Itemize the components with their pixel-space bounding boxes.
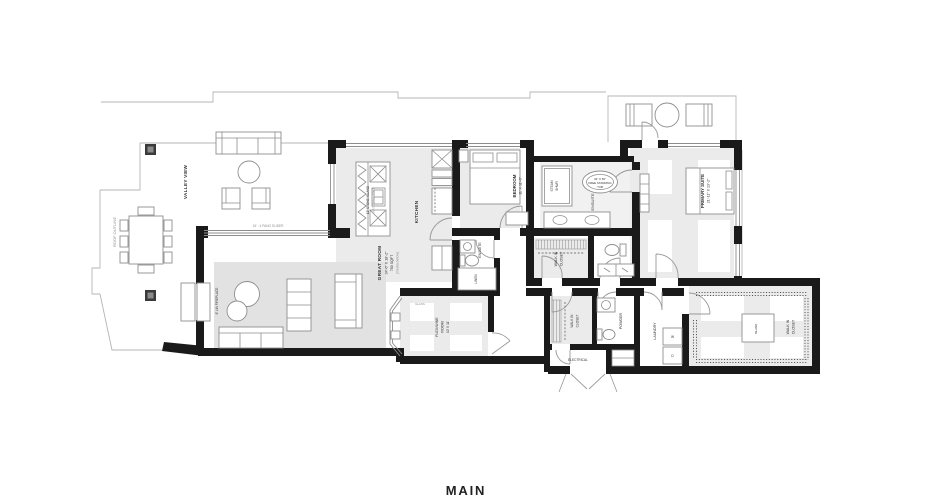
closet-shelf: [536, 240, 586, 249]
primary-ensuite-label: ENSUITE: [590, 193, 595, 211]
glass-label: GLASS: [415, 302, 425, 306]
great-room-area: 780 SQFT: [390, 254, 394, 271]
bedroom-label: BEDROOM: [512, 174, 517, 197]
bedroom-dims: 11' X 11'-6": [519, 176, 523, 194]
outdoor-chair: [222, 188, 240, 209]
toilet-tank: [620, 244, 626, 256]
sectional-sofa: [219, 327, 283, 348]
walkin-primary-label2: CLOSET: [560, 251, 564, 266]
closet-island: [742, 314, 774, 342]
kitchen-label: KITCHEN: [414, 200, 420, 223]
great-room-note: (media below): [396, 252, 400, 275]
floor-plan-canvas: VALLEY VIEW ROOF OUTLINE 16' - 4 PANO SL…: [0, 0, 930, 500]
floor-plan-page: VALLEY VIEW ROOF OUTLINE 16' - 4 PANO SL…: [0, 0, 930, 500]
flex-room-label2: ROOM: [441, 321, 445, 332]
toilet: [605, 245, 619, 256]
sheet-title: MAIN: [446, 483, 486, 498]
outdoor-chair: [252, 188, 270, 209]
double-vanity: [544, 212, 610, 228]
steam-shower-label2: SHWR: [555, 180, 559, 190]
microwave: [432, 179, 452, 186]
toilet: [466, 255, 479, 266]
walkin-hall-label: WALK IN: [570, 314, 574, 328]
washer-label: W: [671, 335, 674, 339]
tub-label3: TUB: [597, 185, 603, 189]
bedroom-ensuite-label: ENSUITE: [478, 242, 482, 258]
outdoor-sofa: [216, 132, 281, 154]
fireplace-label: 6' LIN FIREPLACE: [215, 288, 219, 315]
great-room-label: GREAT ROOM: [377, 246, 383, 281]
walkin-main-label: WALK IN: [786, 319, 790, 334]
island-note: WATERFALL EDGE: [372, 187, 376, 213]
pano-slider-label: 16' - 4 PANO SLIDER: [253, 224, 285, 228]
flex-room-dims: 10' X 11': [446, 321, 450, 333]
exterior-chase: [181, 283, 195, 321]
dining-table: [129, 216, 163, 264]
wall-oven: [432, 170, 452, 177]
toilet-tank: [597, 329, 602, 340]
outdoor-table: [238, 161, 260, 183]
primary-suite-label: PRIMARY SUITE: [700, 174, 705, 208]
coffee-table: [227, 301, 247, 321]
primary-dresser: [640, 174, 649, 212]
closet-shelf: [552, 300, 561, 342]
walkin-hall-label2: CLOSET: [576, 315, 580, 328]
primary-suite-dims: 21'-11" X 13'-2": [707, 178, 711, 203]
toilet-tank: [460, 255, 465, 266]
vanity-sink: [460, 240, 475, 253]
electrical-label: ELECTRICAL: [568, 358, 588, 362]
linen-label: LINEN: [474, 274, 478, 284]
valley-view-label: VALLEY VIEW: [183, 165, 189, 200]
dresser: [506, 212, 528, 225]
island-label: 12' STONE ISLAND: [366, 185, 370, 214]
deck-table: [655, 103, 679, 127]
laundry-label: LAUNDRY: [653, 322, 657, 340]
fireplace: [197, 283, 210, 321]
great-room-dims: 34'-6" X 18'-2": [385, 251, 389, 274]
closet-island-label: ISLAND: [754, 324, 758, 334]
steam-shower-label: STEAM: [550, 180, 554, 191]
nightstand: [459, 150, 468, 162]
powder-label: POWDER: [619, 313, 623, 330]
flex-room-label: FLEX/WINE: [435, 317, 439, 337]
walkin-main-label2: CLOSET: [792, 319, 796, 334]
pano-slider-glazing: [204, 231, 330, 236]
roof-outline-label: ROOF OUTLINE: [112, 217, 117, 247]
walkin-primary-label: WALK IN: [554, 251, 558, 266]
entry-vestibule: [559, 374, 617, 392]
toilet: [603, 330, 615, 340]
